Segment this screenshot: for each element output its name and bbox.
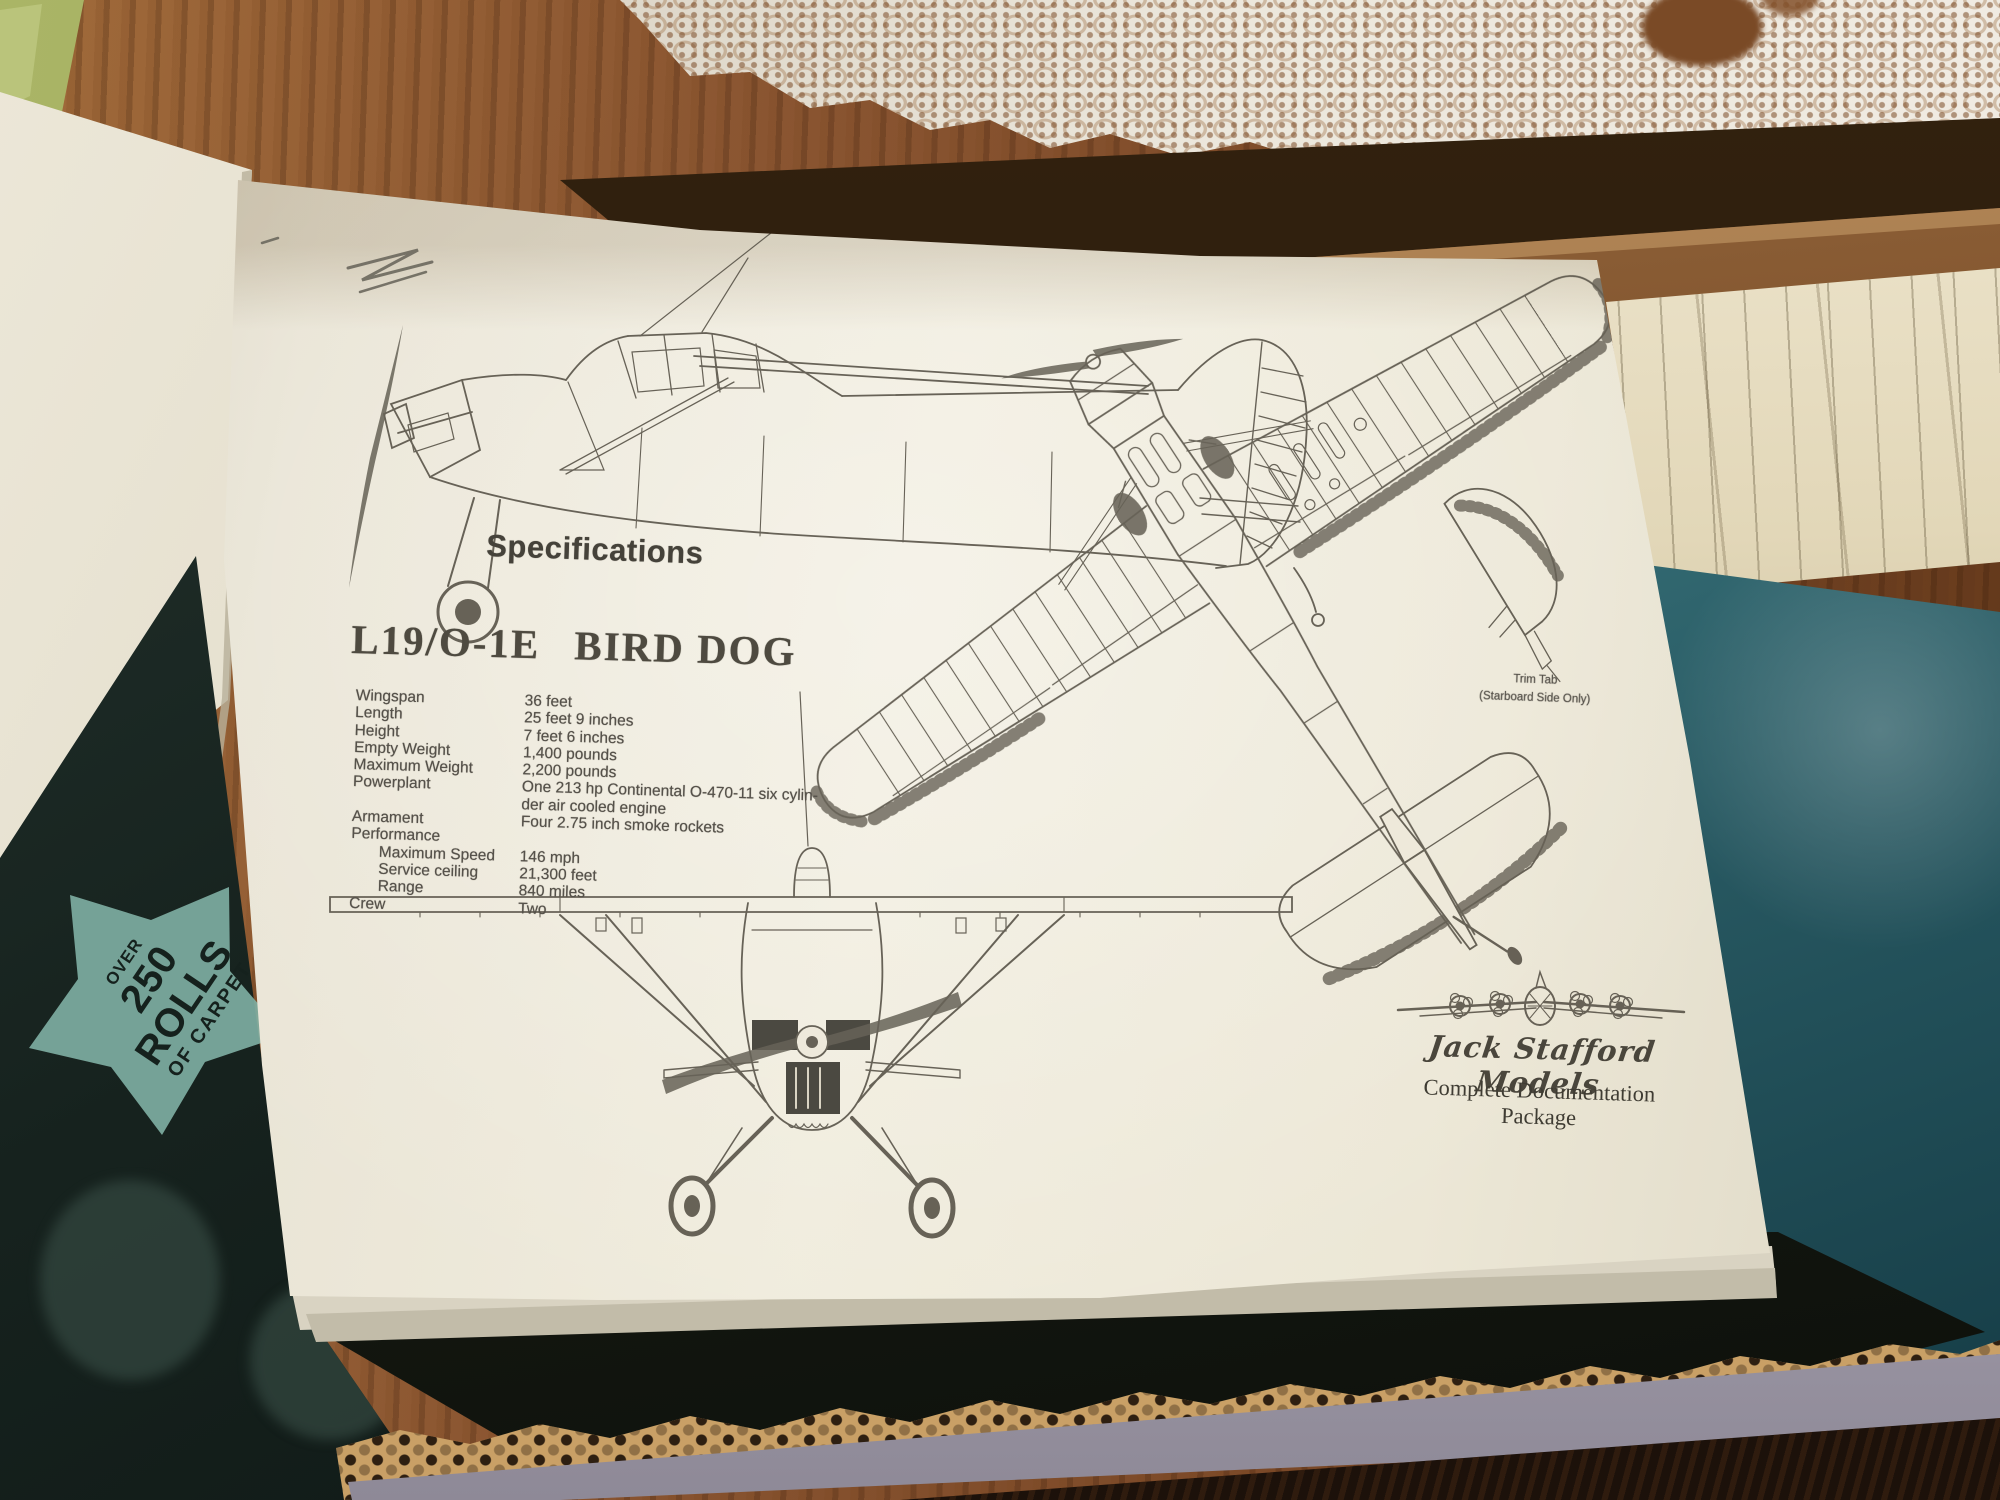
doily-hole [1642, 0, 1762, 66]
aircraft-title: L19/O-1EBIRD DOG [351, 615, 797, 675]
aircraft-title-model: L19/O-1E [351, 616, 541, 667]
trim-tab-caption: Trim Tab (Starboard Side Only) [1444, 669, 1625, 711]
package-caption: Complete Documentation Package [1385, 1073, 1692, 1135]
handwritten-scribble [262, 238, 432, 292]
side-view-drawing [349, 196, 1324, 642]
photo-of-model-kit-box: OVER 250 ROLLS OF CARPET FOR [0, 0, 2000, 1500]
title-gap [540, 658, 574, 659]
propeller-rosettes [1450, 992, 1633, 1019]
newspaper-photo-blob [40, 1180, 220, 1380]
brand-logo-plane-ornament [1398, 972, 1684, 1025]
fin-detail-drawing [1418, 467, 1614, 698]
spec-table: Wingspan36 feet Length25 feet 9 inches H… [349, 687, 956, 931]
specifications-heading: Specifications [486, 528, 704, 572]
doily-hole [1760, 0, 1820, 16]
aircraft-title-name: BIRD DOG [574, 622, 797, 674]
